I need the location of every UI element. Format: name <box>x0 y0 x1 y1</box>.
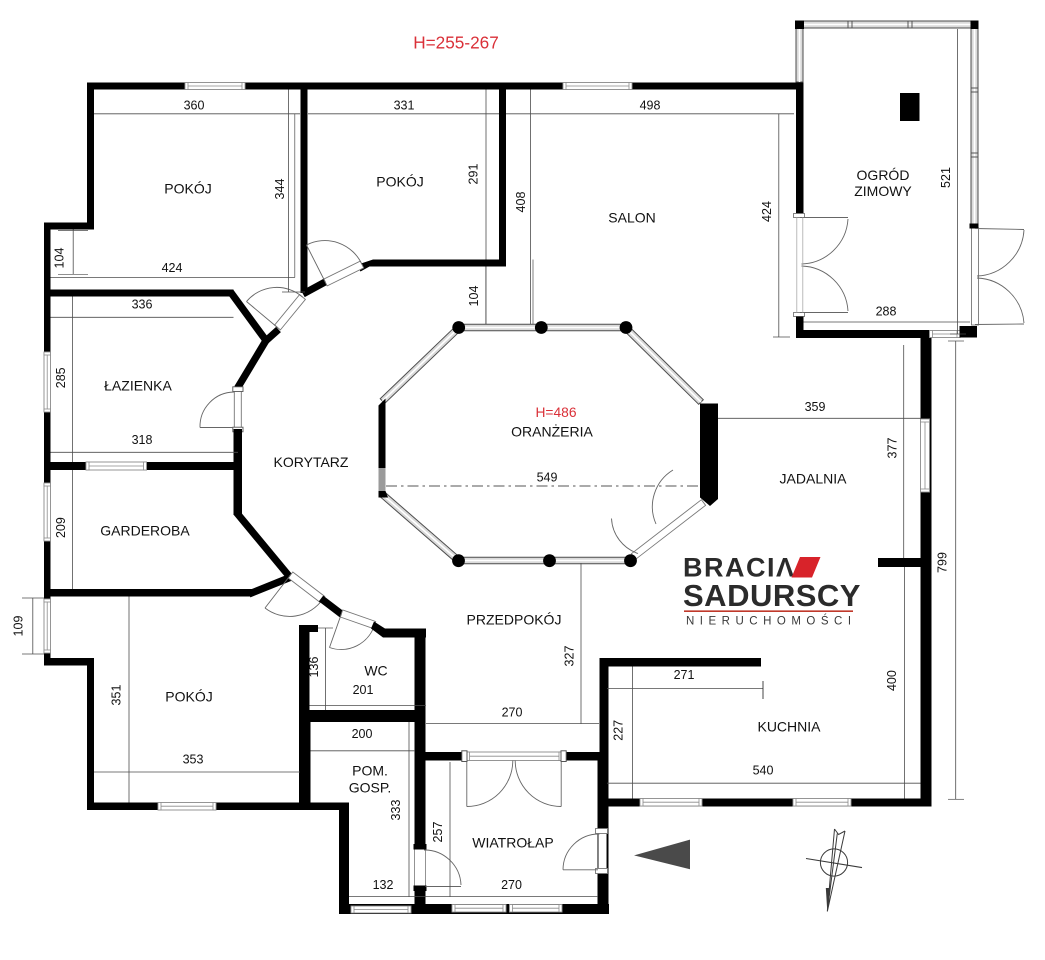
svg-text:227: 227 <box>612 720 626 741</box>
svg-text:424: 424 <box>760 201 774 222</box>
svg-text:257: 257 <box>431 822 445 843</box>
svg-text:318: 318 <box>132 433 153 447</box>
svg-text:104: 104 <box>467 286 481 307</box>
svg-text:521: 521 <box>939 167 953 188</box>
svg-text:H=486: H=486 <box>535 405 576 420</box>
svg-text:327: 327 <box>562 646 576 667</box>
svg-text:132: 132 <box>373 878 394 892</box>
svg-text:201: 201 <box>353 683 374 697</box>
svg-text:353: 353 <box>183 753 204 767</box>
svg-text:109: 109 <box>12 616 26 637</box>
svg-text:ŁAZIENKA: ŁAZIENKA <box>104 378 172 394</box>
svg-text:540: 540 <box>753 764 774 778</box>
svg-text:NIERUCHOMOŚCI: NIERUCHOMOŚCI <box>686 615 857 628</box>
svg-text:271: 271 <box>674 668 695 682</box>
svg-text:GARDEROBA: GARDEROBA <box>100 523 190 539</box>
svg-text:POKÓJ: POKÓJ <box>376 174 423 190</box>
svg-text:336: 336 <box>132 298 153 312</box>
svg-text:209: 209 <box>54 517 68 538</box>
svg-text:377: 377 <box>886 438 900 459</box>
svg-text:200: 200 <box>352 727 373 741</box>
svg-text:H=255-267: H=255-267 <box>413 33 499 53</box>
svg-text:KUCHNIA: KUCHNIA <box>757 719 821 735</box>
svg-text:270: 270 <box>502 706 523 720</box>
svg-text:SALON: SALON <box>608 210 655 226</box>
svg-text:WC: WC <box>364 663 387 679</box>
svg-text:POM.: POM. <box>352 763 388 779</box>
svg-text:359: 359 <box>805 400 826 414</box>
svg-text:498: 498 <box>640 99 661 113</box>
svg-text:104: 104 <box>53 248 67 269</box>
svg-text:408: 408 <box>514 192 528 213</box>
svg-text:424: 424 <box>162 261 183 275</box>
svg-text:333: 333 <box>389 800 403 821</box>
svg-text:288: 288 <box>876 305 897 319</box>
svg-text:549: 549 <box>537 471 558 485</box>
svg-text:JADALNIA: JADALNIA <box>780 471 848 487</box>
svg-text:291: 291 <box>467 164 481 185</box>
svg-text:OGRÓD: OGRÓD <box>857 167 910 183</box>
svg-text:344: 344 <box>273 179 287 200</box>
svg-text:WIATROŁAP: WIATROŁAP <box>472 835 553 851</box>
svg-text:400: 400 <box>885 670 899 691</box>
svg-text:799: 799 <box>936 552 950 573</box>
svg-text:KORYTARZ: KORYTARZ <box>274 454 349 470</box>
svg-text:PRZEDPOKÓJ: PRZEDPOKÓJ <box>467 612 562 628</box>
svg-text:ZIMOWY: ZIMOWY <box>854 183 912 199</box>
svg-text:331: 331 <box>394 99 415 113</box>
svg-text:SADURSCY: SADURSCY <box>683 578 861 613</box>
svg-text:POKÓJ: POKÓJ <box>165 689 212 705</box>
svg-text:ORANŻERIA: ORANŻERIA <box>511 423 593 440</box>
svg-text:GOSP.: GOSP. <box>349 780 392 796</box>
svg-text:270: 270 <box>501 878 522 892</box>
svg-text:136: 136 <box>307 657 321 678</box>
svg-text:351: 351 <box>109 685 123 706</box>
svg-text:285: 285 <box>54 367 68 388</box>
svg-text:360: 360 <box>184 99 205 113</box>
svg-text:POKÓJ: POKÓJ <box>164 181 211 197</box>
